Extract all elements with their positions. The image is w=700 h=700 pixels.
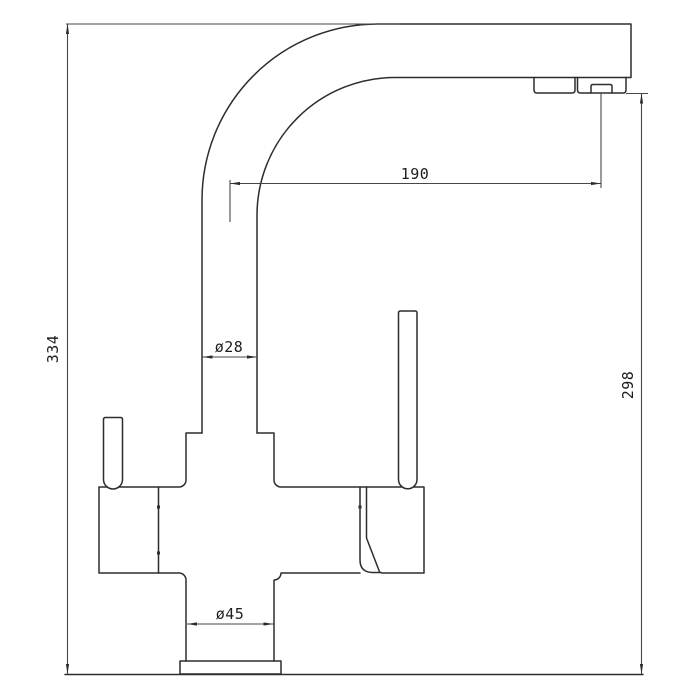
dim-334-label: 334: [44, 335, 62, 364]
spout-underside-block: [534, 78, 575, 94]
right-handle-body: [367, 487, 425, 573]
faucet-body-right-top-outline: [257, 433, 367, 487]
dimension-group: 334 298 190 ø28 ø45: [44, 24, 648, 674]
faucet-outline-group: [65, 24, 643, 675]
faucet-body-right-bottom-outline: [274, 573, 360, 661]
right-lever-handle: [399, 311, 418, 489]
drawing-page: 334 298 190 ø28 ø45: [0, 0, 700, 700]
technical-drawing-canvas: 334 298 190 ø28 ø45: [0, 0, 700, 700]
dim-d45-label: ø45: [216, 605, 245, 623]
dim-190-label: 190: [401, 165, 430, 183]
left-joint-tick-upper: [157, 506, 160, 509]
dim-d28-arrow-left: [203, 355, 213, 358]
base-flange: [180, 661, 281, 674]
dim-190-arrow-right: [591, 182, 601, 185]
right-joint-tick-upper: [359, 506, 362, 509]
aerator-nozzle: [591, 85, 612, 94]
dim-298-label: 298: [619, 371, 637, 400]
dim-298-arrow-bottom: [640, 664, 643, 674]
left-lever-handle: [104, 418, 123, 490]
dim-d28-arrow-right: [247, 355, 257, 358]
dim-d45-arrow-right: [264, 622, 274, 625]
right-valve-joint-line: [360, 487, 380, 573]
dim-190-arrow-left: [230, 182, 240, 185]
dim-298-arrow-top: [640, 94, 643, 104]
dim-334-arrow-bottom: [66, 664, 69, 674]
dim-334-arrow-top: [66, 24, 69, 34]
left-joint-tick-lower: [157, 552, 160, 555]
dim-d45-arrow-left: [187, 622, 197, 625]
dim-d28-label: ø28: [215, 338, 244, 356]
